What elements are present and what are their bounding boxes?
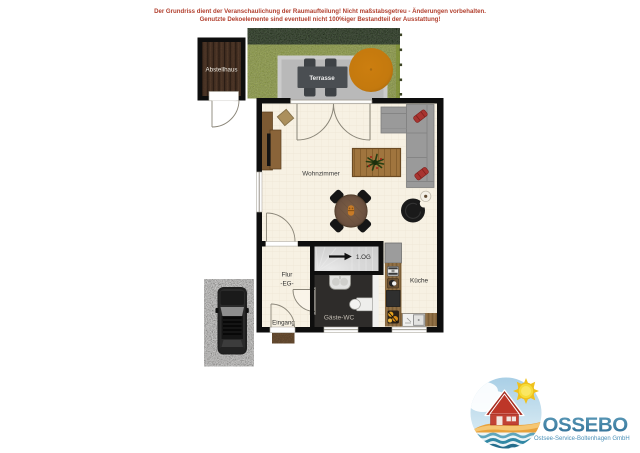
svg-text:Eingang: Eingang (272, 320, 295, 327)
svg-text:1.OG: 1.OG (356, 254, 371, 261)
svg-text:OSSEBO: OSSEBO (543, 414, 629, 437)
svg-text:Ostsee-Service-Boltenhagen Gmb: Ostsee-Service-Boltenhagen GmbH (534, 436, 630, 442)
svg-text:Gäste-WC: Gäste-WC (324, 314, 355, 321)
svg-text:Terrasse: Terrasse (309, 75, 335, 82)
svg-text:-EG-: -EG- (280, 281, 293, 288)
svg-text:Wohnzimmer: Wohnzimmer (302, 170, 340, 177)
svg-text:Küche: Küche (410, 277, 429, 284)
svg-text:Abstellhaus: Abstellhaus (206, 66, 238, 73)
svg-text:Flur: Flur (282, 271, 293, 278)
